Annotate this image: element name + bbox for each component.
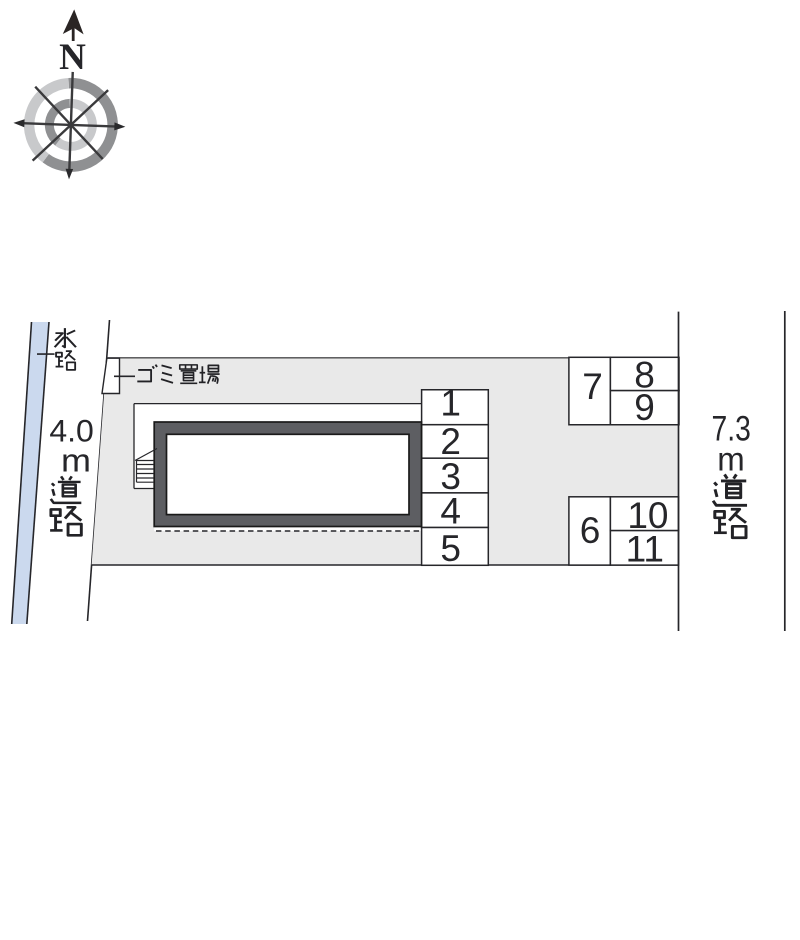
svg-text:m: m — [61, 442, 91, 478]
svg-text:5: 5 — [440, 528, 461, 569]
svg-text:4: 4 — [440, 491, 461, 532]
svg-text:N: N — [59, 37, 86, 78]
svg-text:11: 11 — [626, 529, 664, 570]
svg-text:6: 6 — [580, 510, 601, 551]
svg-text:1: 1 — [440, 383, 461, 424]
svg-text:m: m — [717, 441, 745, 478]
svg-text:9: 9 — [634, 387, 655, 428]
svg-text:7: 7 — [582, 366, 603, 407]
